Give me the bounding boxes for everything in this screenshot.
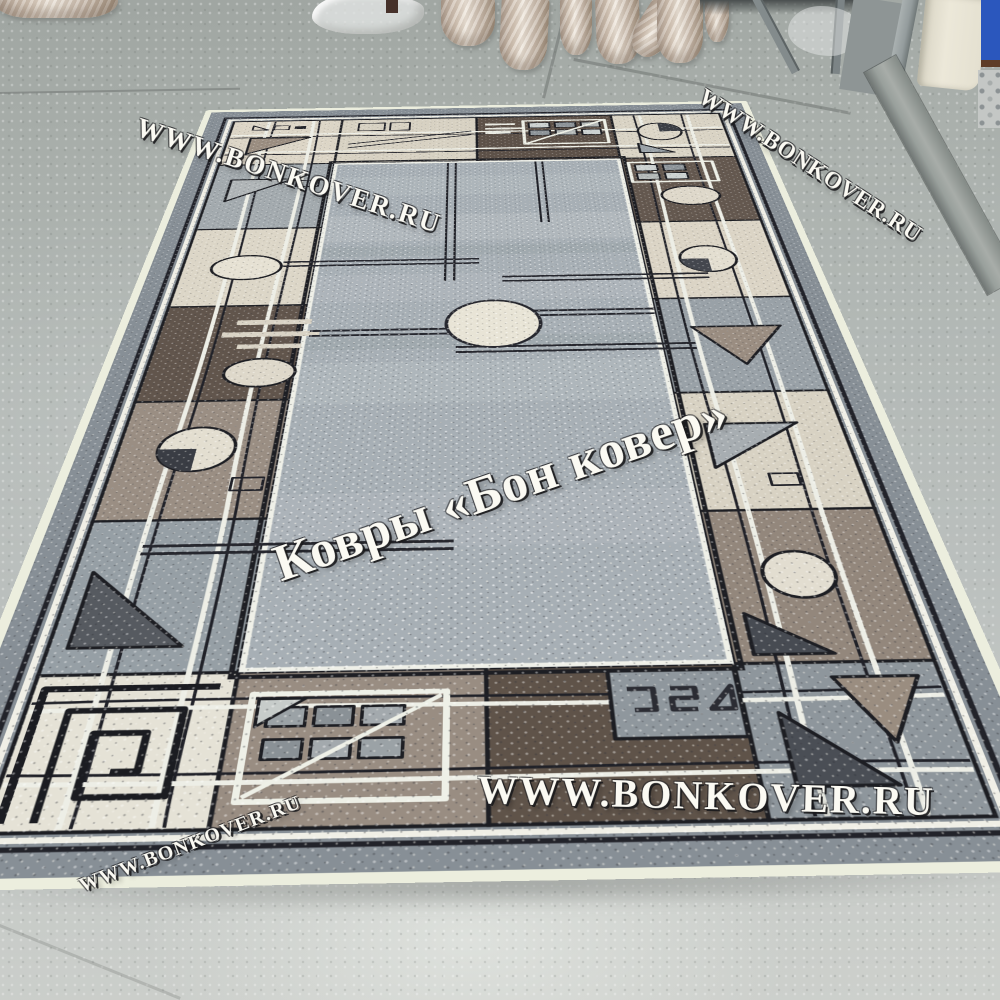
product-photo: .k4{stroke:#202128;stroke-width:4;fill:n… xyxy=(0,0,1000,1000)
